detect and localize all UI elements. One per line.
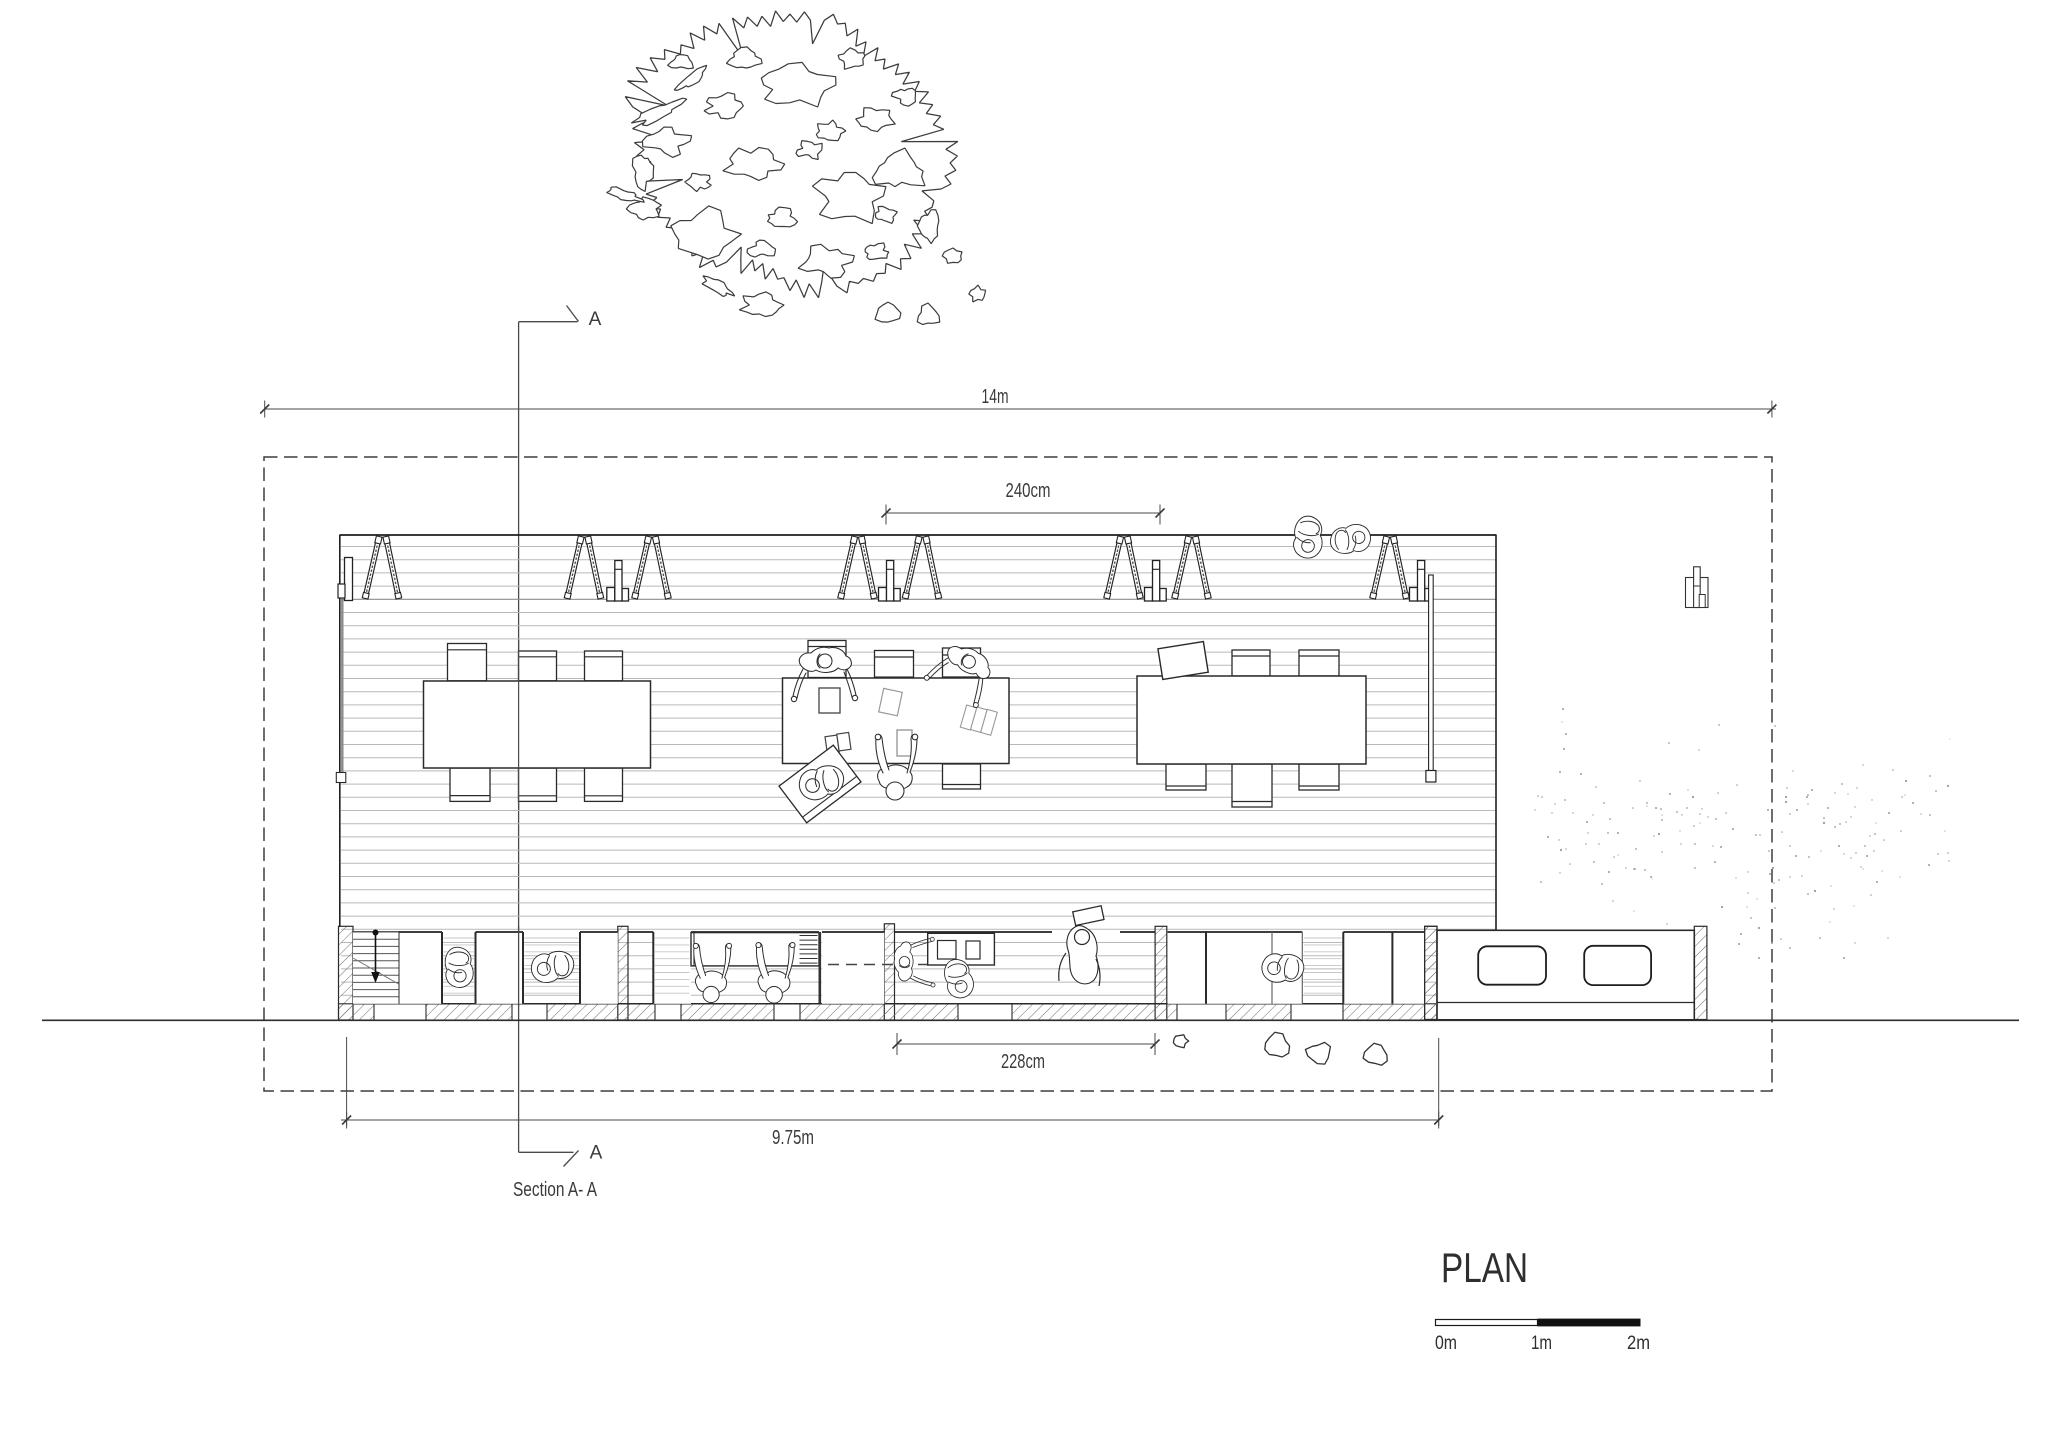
svg-text:1m: 1m bbox=[1531, 1333, 1552, 1354]
svg-text:240cm: 240cm bbox=[1006, 480, 1051, 502]
svg-text:9.75m: 9.75m bbox=[772, 1127, 814, 1149]
svg-text:228cm: 228cm bbox=[1001, 1051, 1045, 1073]
svg-text:PLAN: PLAN bbox=[1441, 1244, 1528, 1291]
svg-text:A: A bbox=[590, 1143, 603, 1164]
svg-text:A: A bbox=[589, 309, 602, 330]
svg-text:2m: 2m bbox=[1627, 1333, 1650, 1354]
svg-text:Section A- A: Section A- A bbox=[513, 1179, 597, 1201]
svg-text:0m: 0m bbox=[1435, 1333, 1457, 1354]
svg-text:14m: 14m bbox=[982, 386, 1009, 408]
